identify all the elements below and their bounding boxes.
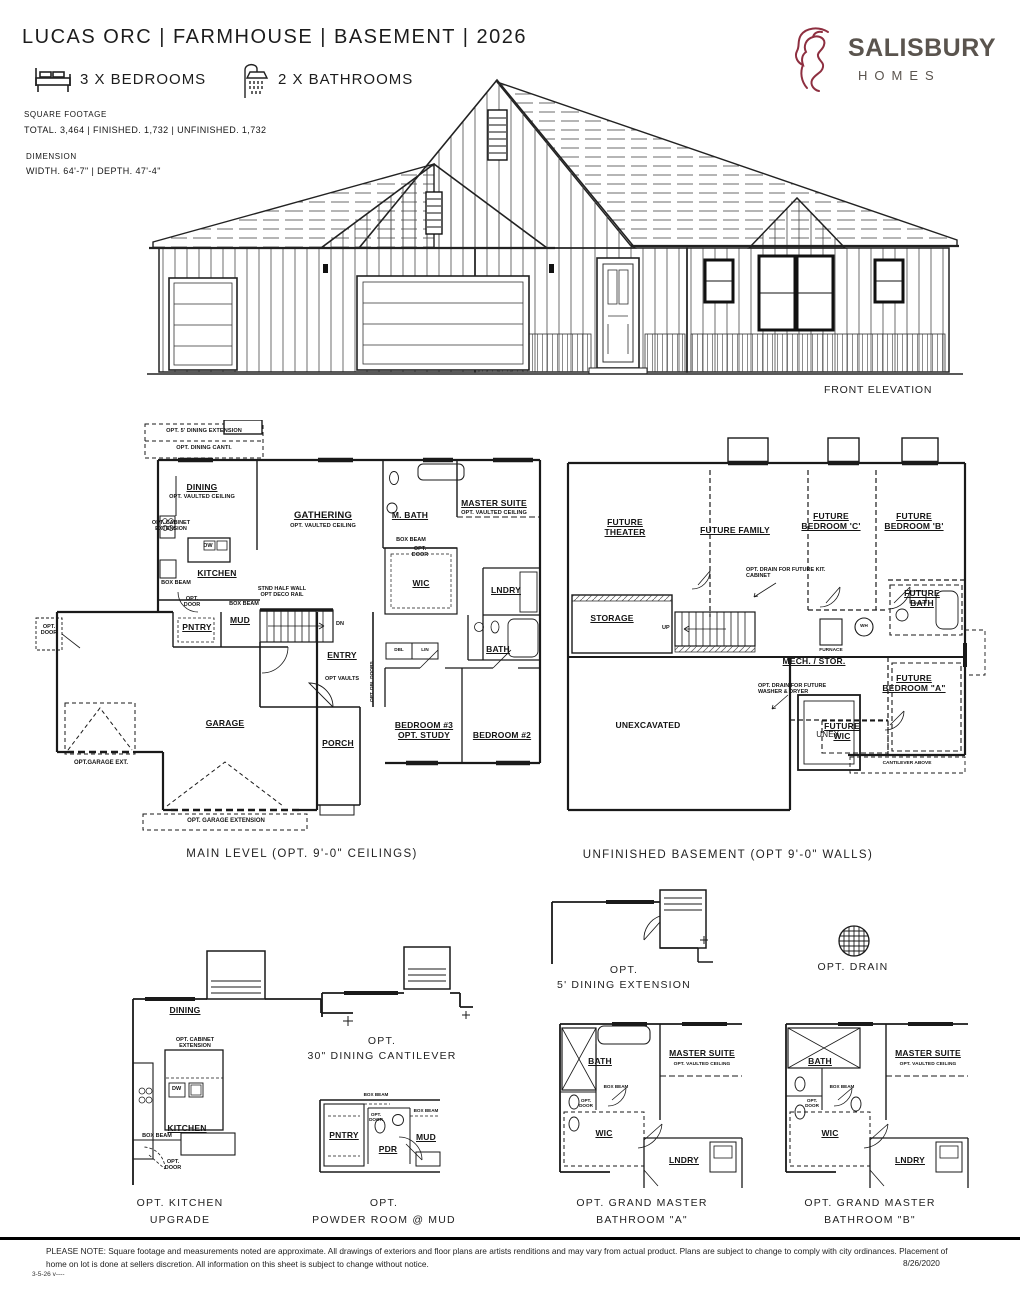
note-garage-ext: OPT.GARAGE EXT. <box>59 760 143 767</box>
gm-b-bath-label: BATH <box>808 1056 832 1066</box>
footer-disclaimer: PLEASE NOTE: Square footage and measurem… <box>46 1245 958 1272</box>
note-up: UP <box>662 625 670 631</box>
footer-divider <box>0 1237 1020 1240</box>
opt-kitchen-cab-ext-note: OPT. CABINET EXTENSION <box>169 1037 221 1050</box>
opt-gm-bath-a-plan: BATH MASTER SUITE OPT. VAULTED CEILING W… <box>552 1000 747 1188</box>
gm-a-lndry-label: LNDRY <box>669 1155 699 1165</box>
note-furnace: FURNACE <box>810 648 852 654</box>
opt-gm-bath-b-plan: BATH MASTER SUITE OPT. VAULTED CEILING W… <box>778 1000 973 1188</box>
basement-plan: FUTURE THEATER FUTURE FAMILY FUTURE BEDR… <box>558 425 990 850</box>
room-label-storage: STORAGE <box>590 613 633 623</box>
note-opt-door-wic: OPT. DOOR <box>407 546 433 559</box>
room-label-kitchen: KITCHEN <box>197 568 236 578</box>
room-label-porch: PORCH <box>322 738 354 748</box>
gm-a-caption-2: BATHROOM "A" <box>596 1214 688 1226</box>
footer-date: 8/26/2020 <box>903 1257 940 1270</box>
opt-powder-box-beam-1: BOX BEAM <box>355 1092 397 1097</box>
opt-powder-caption-1: OPT. <box>370 1197 398 1209</box>
note-dw: DW <box>200 543 216 549</box>
opt-dining-ext-caption-2: 5' DINING EXTENSION <box>557 979 691 991</box>
opt-powder-opt-door: OPT. DOOR <box>364 1112 388 1123</box>
opt-powder-mud-label: MUD <box>416 1132 436 1142</box>
opt-kitchen-caption-2: UPGRADE <box>150 1214 210 1226</box>
closet-dbl: DBL <box>386 647 412 652</box>
sheet-title: LUCAS ORC | FARMHOUSE | BASEMENT | 2026 <box>22 26 527 49</box>
note-opt-door-pantry: OPT. DOOR <box>179 596 205 609</box>
opt-kitchen-caption-1: OPT. KITCHEN <box>137 1197 224 1209</box>
gm-b-box-beam: BOX BEAM <box>821 1084 863 1089</box>
note-cabinet-extension: OPT. CABINET EXTENSION <box>147 520 195 533</box>
opt-kitchen-dining-label: DINING <box>170 1005 201 1015</box>
basement-plan-drawing <box>558 425 990 850</box>
gm-b-opt-door: OPT. DOOR <box>800 1098 824 1109</box>
note-garage-extension: OPT. GARAGE EXTENSION <box>151 818 301 825</box>
opt-dining-extension-plan <box>548 888 713 970</box>
gm-b-vaulted-note: OPT. VAULTED CEILING <box>900 1062 957 1068</box>
closet-lin: LIN <box>412 647 438 652</box>
opt-dining-cantilever-drawing <box>318 945 473 1030</box>
opt-powder-caption-2: POWDER ROOM @ MUD <box>312 1214 456 1226</box>
front-elevation-drawing <box>145 72 970 384</box>
room-label-mech: MECH. / STOR. <box>783 656 846 666</box>
plan-sheet: LUCAS ORC | FARMHOUSE | BASEMENT | 2026 … <box>0 0 1020 1309</box>
front-elevation-caption: FRONT ELEVATION <box>824 384 932 396</box>
opt-drain-caption: OPT. DRAIN <box>818 961 889 973</box>
opt-kitchen-box-beam: BOX BEAM <box>136 1133 178 1139</box>
opt-dining-cantilever-plan <box>318 945 473 1030</box>
opt-dining-ext-caption-1: OPT. <box>610 964 638 976</box>
gm-b-caption-1: OPT. GRAND MASTER <box>804 1197 935 1209</box>
main-level-caption: MAIN LEVEL (OPT. 9'-0" CEILINGS) <box>186 848 418 860</box>
room-label-lndry: LNDRY <box>491 585 521 595</box>
room-label-gathering: GATHERING <box>294 510 352 521</box>
note-dn: DN <box>336 621 344 627</box>
opt-kitchen-dw-note: DW <box>172 1086 181 1092</box>
gm-a-caption-1: OPT. GRAND MASTER <box>576 1197 707 1209</box>
note-drain-kit: OPT. DRAIN FOR FUTURE KIT. CABINET <box>746 567 834 580</box>
dining-vaulted-note: OPT. VAULTED CEILING <box>169 494 235 501</box>
note-dining-cantilever: OPT. DINING CANTI. <box>146 445 262 452</box>
opt-kitchen-kitchen-label: KITCHEN <box>167 1123 206 1133</box>
gm-b-master-label: MASTER SUITE <box>895 1048 961 1058</box>
opt-powder-box-beam-2: BOX BEAM <box>405 1108 447 1113</box>
basement-caption: UNFINISHED BASEMENT (OPT 9'-0" WALLS) <box>583 849 873 861</box>
footer-revision: 3-5-26 v---- <box>32 1271 65 1278</box>
room-label-garage: GARAGE <box>206 718 245 728</box>
room-label-bath: BATH <box>486 644 510 654</box>
master-vaulted-note: OPT. VAULTED CEILING <box>461 510 527 517</box>
room-label-future-bed-b: FUTURE BEDROOM 'B' <box>877 511 951 531</box>
room-label-mbath: M. BATH <box>392 510 428 520</box>
sqft-label: SQUARE FOOTAGE <box>24 110 107 119</box>
gm-b-wic-label: WIC <box>821 1128 838 1138</box>
room-label-bed2: BEDROOM #2 <box>473 730 531 740</box>
bed-icon <box>33 66 73 94</box>
gm-b-caption-2: BATHROOM "B" <box>824 1214 916 1226</box>
opt-gm-bath-a-drawing <box>552 1000 747 1188</box>
room-label-entry: ENTRY <box>327 650 357 660</box>
gm-b-lndry-label: LNDRY <box>895 1155 925 1165</box>
room-label-unexcavated: UNEXCAVATED <box>615 720 680 730</box>
opt-cantilever-caption-1: OPT. <box>368 1035 396 1047</box>
gm-a-bath-label: BATH <box>588 1056 612 1066</box>
room-label-unex: UNEX. <box>816 730 841 740</box>
note-dining-extension: OPT. 5' DINING EXTENSION <box>146 428 262 435</box>
room-label-master-suite: MASTER SUITE <box>461 498 527 508</box>
note-drain-washer: OPT. DRAIN FOR FUTURE WASHER & DRYER <box>758 683 850 696</box>
room-label-future-bath: FUTURE BATH <box>896 588 948 608</box>
note-box-beam-mud: BOX BEAM <box>223 601 265 607</box>
note-box-beam-kitchen: BOX BEAM <box>155 580 197 586</box>
opt-gm-bath-b-drawing <box>778 1000 973 1188</box>
room-label-bed3: BEDROOM #3 OPT. STUDY <box>388 720 460 740</box>
opt-kitchen-opt-door: OPT. DOOR <box>160 1159 186 1172</box>
note-wh: WH <box>860 623 868 628</box>
room-label-mud: MUD <box>230 615 250 625</box>
gm-a-opt-door: OPT. DOOR <box>574 1098 598 1109</box>
note-opt-dbl-doors: OPT. DBL DOORS <box>370 661 376 702</box>
opt-powder-pdr-label: PDR <box>379 1144 398 1154</box>
note-half-wall: STND HALF WALL OPT DECO RAIL <box>253 586 311 599</box>
note-box-beam-mbath: BOX BEAM <box>390 537 432 543</box>
room-label-future-bed-c: FUTURE BEDROOM 'C' <box>794 511 868 531</box>
gm-a-box-beam: BOX BEAM <box>595 1084 637 1089</box>
gm-a-master-label: MASTER SUITE <box>669 1048 735 1058</box>
opt-cantilever-caption-2: 30" DINING CANTILEVER <box>307 1050 456 1062</box>
dimension-value: WIDTH. 64'-7" | DEPTH. 47'-4" <box>26 166 161 176</box>
note-cantilever: CANTILEVER ABOVE <box>862 761 952 767</box>
brand-name: SALISBURY <box>848 34 996 63</box>
gathering-vaulted-note: OPT. VAULTED CEILING <box>290 523 356 530</box>
room-label-future-family: FUTURE FAMILY <box>700 525 770 535</box>
opt-powder-room-plan: PNTRY PDR MUD BOX BEAM BOX BEAM OPT. DOO… <box>318 1086 446 1180</box>
room-label-dining: DINING <box>187 482 218 492</box>
note-opt-door-left: OPT. DOOR <box>37 624 61 637</box>
gm-a-wic-label: WIC <box>595 1128 612 1138</box>
dimension-label: DIMENSION <box>26 152 77 161</box>
room-label-wic: WIC <box>412 578 429 588</box>
room-label-future-bed-a: FUTURE BEDROOM "A" <box>877 673 951 693</box>
room-label-pntry: PNTRY <box>182 622 212 632</box>
opt-powder-pntry-label: PNTRY <box>329 1130 359 1140</box>
room-label-future-theater: FUTURE THEATER <box>594 517 656 537</box>
gm-a-vaulted-note: OPT. VAULTED CEILING <box>674 1062 731 1068</box>
main-level-plan: DINING OPT. VAULTED CEILING GATHERING OP… <box>28 420 543 852</box>
note-opt-vaults: OPT VAULTS <box>317 676 367 682</box>
main-level-plan-drawing <box>28 420 543 852</box>
opt-dining-extension-drawing <box>548 888 713 970</box>
